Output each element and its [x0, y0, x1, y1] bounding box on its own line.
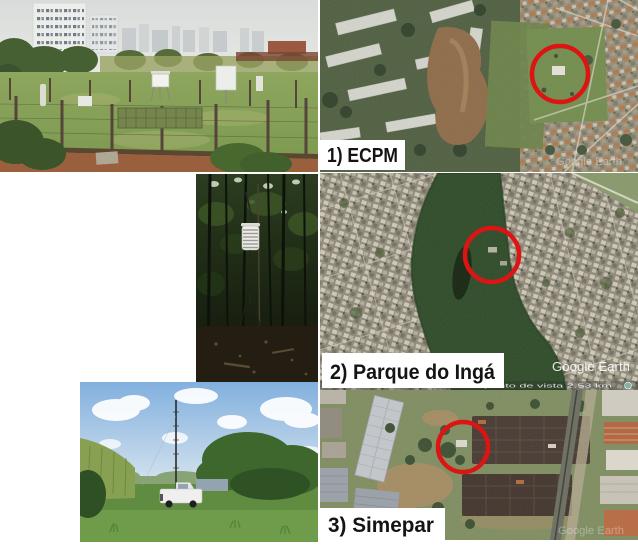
ecpm-photo-art: [0, 0, 318, 172]
ecpm-ground-photo: [0, 0, 318, 172]
simepar-label: 3) Simepar: [320, 508, 445, 540]
forest-floor: [196, 326, 318, 383]
google-earth-watermark-faint: Google Earth: [556, 156, 622, 168]
ecpm-label: 1) ECPM: [320, 140, 405, 170]
parque-label-text: 2) Parque do Ingá: [330, 361, 495, 384]
parque-map-art: Google Earth 0 m altitude do ponto de vi…: [320, 173, 638, 390]
grass-front: [80, 510, 318, 542]
google-earth-watermark-faint: Google Earth: [558, 525, 624, 537]
simepar-ground-photo: [80, 382, 318, 542]
rain-gauge: [40, 84, 46, 106]
simepar-satellite-map: Google Earth 3) Simepar: [320, 390, 638, 540]
simepar-photo-art: [80, 382, 318, 542]
compass-icon: [625, 382, 632, 389]
evaporation-platform: [118, 108, 202, 128]
ecpm-map-art: Google Earth 1) ECPM: [320, 0, 638, 172]
figure-canvas: Google Earth 1) ECPM: [0, 0, 638, 548]
google-earth-watermark: Google Earth: [552, 359, 630, 374]
ecpm-label-text: 1) ECPM: [327, 145, 398, 167]
parque-label: 2) Parque do Ingá: [322, 353, 504, 388]
forest-photo-art: [196, 174, 318, 383]
simepar-map-art: Google Earth 3) Simepar: [320, 390, 638, 540]
parque-satellite-map: Google Earth 0 m altitude do ponto de vi…: [320, 173, 638, 390]
red-wall: [236, 52, 318, 61]
parque-forest-photo: [196, 174, 318, 383]
white-post: [256, 76, 263, 91]
small-box: [78, 96, 92, 106]
simepar-label-text: 3) Simepar: [328, 514, 434, 537]
ecpm-satellite-map: Google Earth 1) ECPM: [320, 0, 638, 172]
concrete-block: [96, 151, 119, 165]
